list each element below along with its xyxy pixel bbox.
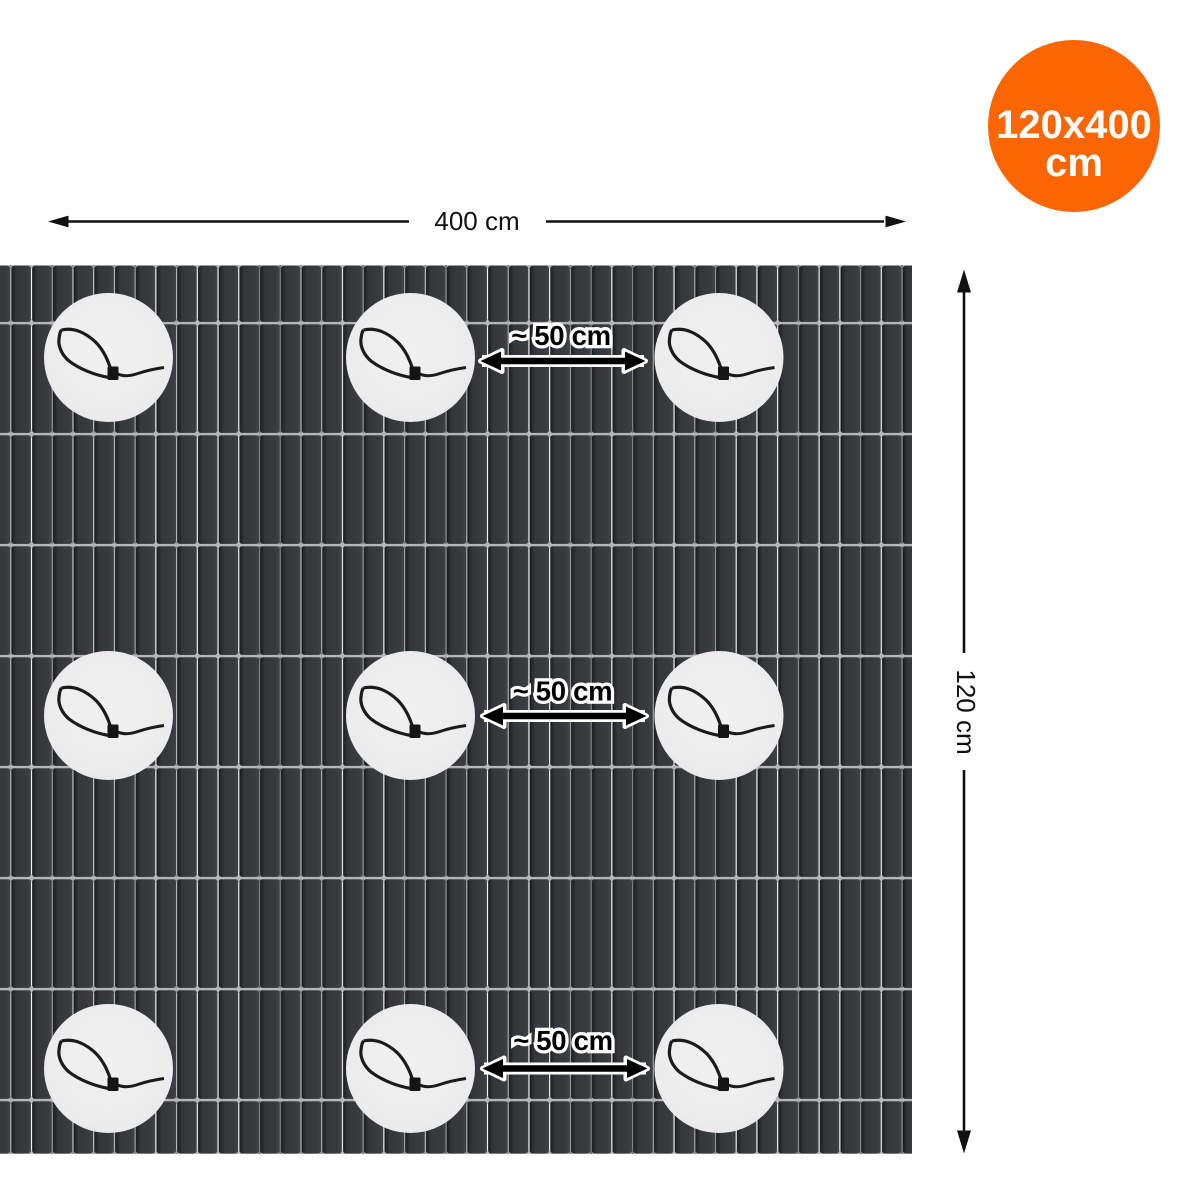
svg-text:~ 50 cm: ~ 50 cm [513, 676, 613, 707]
svg-text:120 cm: 120 cm [951, 669, 981, 754]
svg-text:400 cm: 400 cm [434, 206, 519, 236]
svg-text:~ 50 cm: ~ 50 cm [513, 1025, 613, 1056]
svg-text:~ 50 cm: ~ 50 cm [511, 320, 611, 351]
svg-text:cm: cm [1045, 141, 1103, 185]
